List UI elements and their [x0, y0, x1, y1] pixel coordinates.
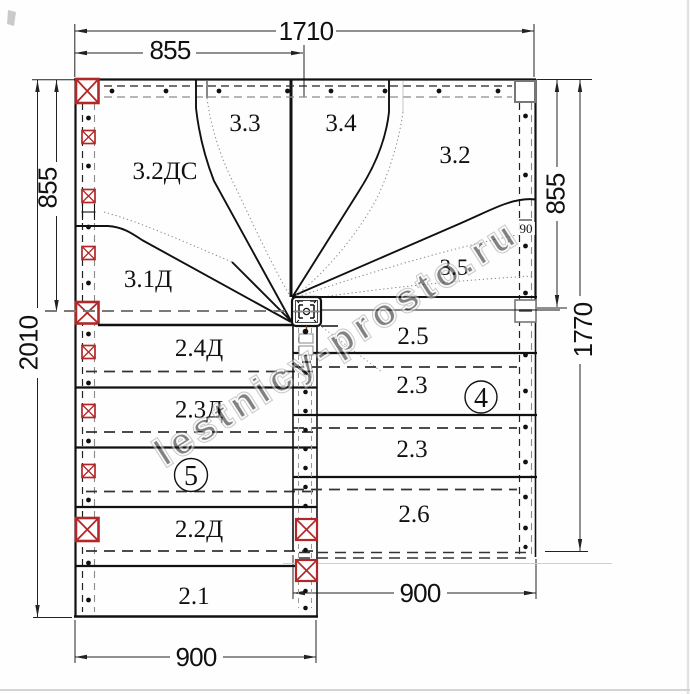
svg-text:3.1Д: 3.1Д — [124, 266, 172, 293]
svg-text:855: 855 — [150, 35, 191, 65]
svg-text:900: 900 — [176, 642, 217, 672]
svg-text:2.4Д: 2.4Д — [175, 335, 223, 362]
svg-text:2.2Д: 2.2Д — [175, 516, 223, 543]
svg-text:90: 90 — [520, 221, 533, 236]
svg-text:1710: 1710 — [279, 16, 334, 46]
svg-text:2.3: 2.3 — [396, 372, 427, 399]
svg-text:2.3: 2.3 — [396, 436, 427, 463]
svg-text:1770: 1770 — [568, 302, 598, 357]
svg-text:900: 900 — [400, 578, 441, 608]
svg-text:3.3: 3.3 — [229, 110, 260, 137]
svg-text:4: 4 — [474, 383, 488, 414]
svg-text:3.2ДС: 3.2ДС — [133, 158, 198, 185]
svg-text:2.6: 2.6 — [398, 501, 429, 528]
svg-text:855: 855 — [541, 173, 571, 214]
svg-text:3.4: 3.4 — [325, 110, 357, 137]
svg-text:5: 5 — [184, 461, 198, 492]
svg-text:3.2: 3.2 — [439, 142, 470, 169]
svg-text:2.1: 2.1 — [178, 583, 209, 610]
svg-text:2010: 2010 — [14, 315, 44, 370]
svg-text:2.5: 2.5 — [397, 323, 428, 350]
